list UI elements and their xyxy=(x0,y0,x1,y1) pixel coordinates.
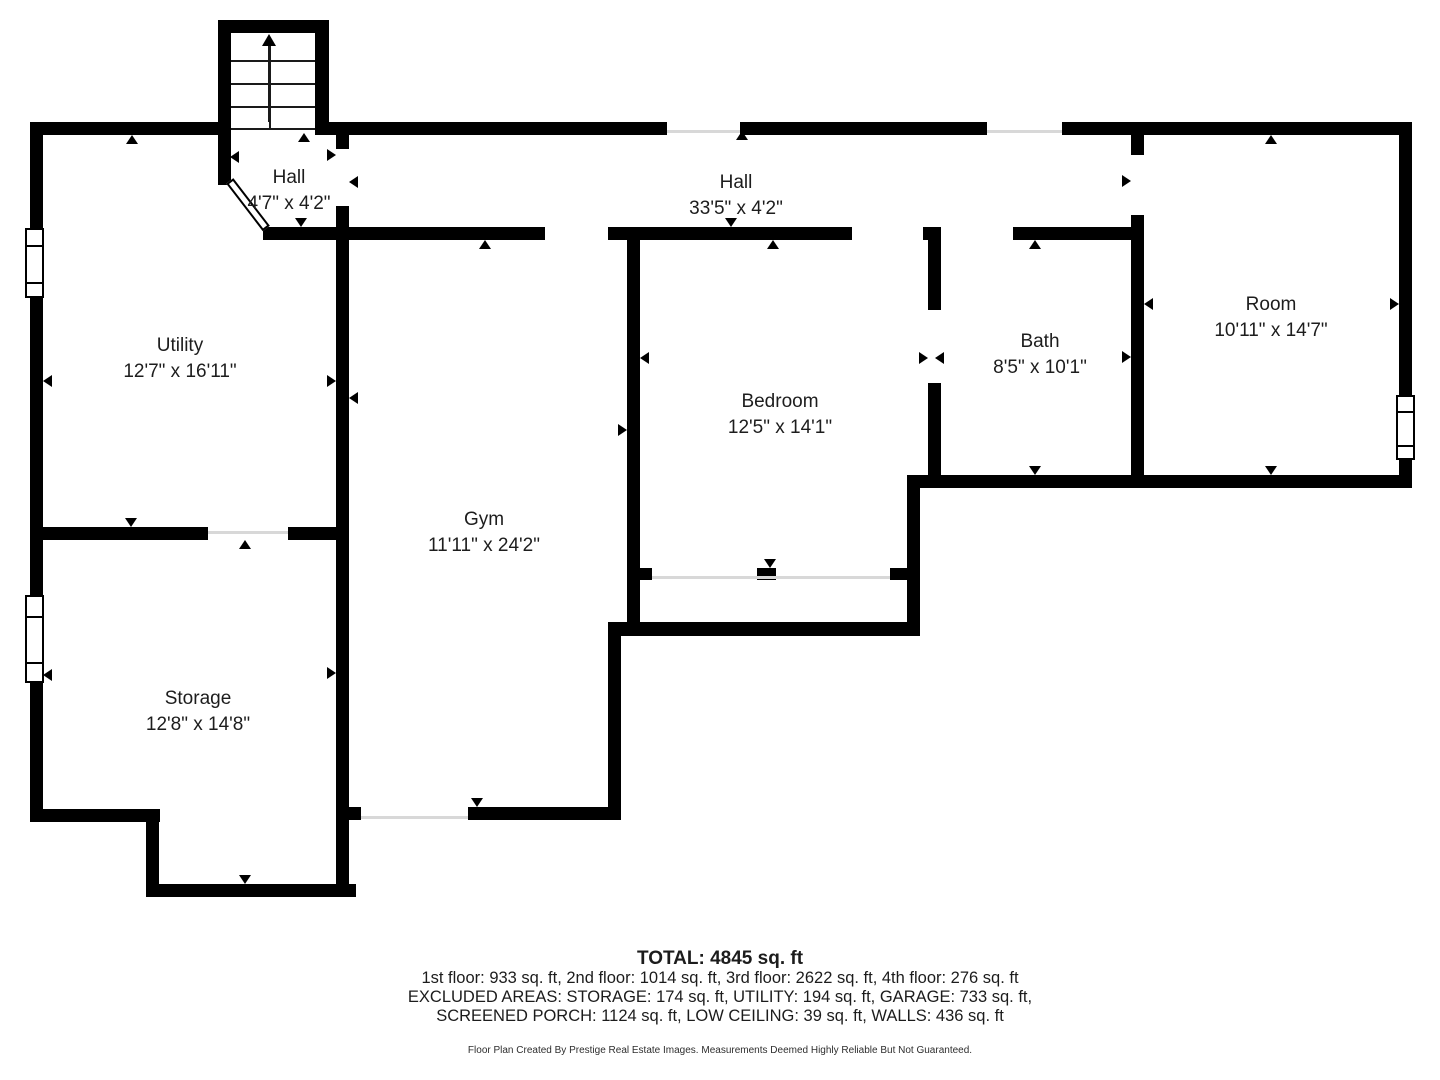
stairs-tread xyxy=(231,128,315,130)
room-label-bedroom: Bedroom12'5" x 14'1" xyxy=(728,389,832,441)
dimension-arrow-left-icon xyxy=(1144,298,1153,310)
dimension-arrow-down-icon xyxy=(239,875,251,884)
opening-line xyxy=(987,130,1062,133)
wall-segment xyxy=(30,683,43,822)
footer-excluded-areas-2: SCREENED PORCH: 1124 sq. ft, LOW CEILING… xyxy=(0,1007,1440,1026)
wall-segment xyxy=(346,807,361,820)
footer-floor-areas: 1st floor: 933 sq. ft, 2nd floor: 1014 s… xyxy=(0,969,1440,988)
wall-segment xyxy=(30,527,208,540)
wall-segment xyxy=(1013,227,1131,240)
wall-segment xyxy=(336,135,349,149)
dimension-arrow-right-icon xyxy=(919,352,928,364)
wall-segment xyxy=(30,809,160,822)
dimension-arrow-up-icon xyxy=(1029,240,1041,249)
wall-segment xyxy=(640,568,652,580)
window-pane-line xyxy=(1397,445,1414,447)
room-label-hall-small: Hall4'7" x 4'2" xyxy=(247,165,330,217)
room-dimensions: 12'7" x 16'11" xyxy=(123,359,236,385)
stairs-tread xyxy=(231,106,315,108)
room-dimensions: 12'8" x 14'8" xyxy=(146,712,250,738)
dimension-arrow-right-icon xyxy=(618,424,627,436)
wall-segment xyxy=(263,227,348,240)
room-name: Utility xyxy=(123,333,236,359)
room-dimensions: 33'5" x 4'2" xyxy=(689,196,783,222)
dimension-arrow-left-icon xyxy=(43,669,52,681)
footer-excluded-areas: EXCLUDED AREAS: STORAGE: 174 sq. ft, UTI… xyxy=(0,988,1440,1007)
dimension-arrow-left-icon xyxy=(349,392,358,404)
dimension-arrow-down-icon xyxy=(1029,466,1041,475)
dimension-arrow-down-icon xyxy=(125,518,137,527)
opening-line xyxy=(652,576,890,579)
wall-segment xyxy=(468,807,621,820)
wall-segment xyxy=(30,540,43,595)
room-label-storage: Storage12'8" x 14'8" xyxy=(146,686,250,738)
opening-line xyxy=(208,531,288,534)
room-dimensions: 11'11" x 24'2" xyxy=(428,533,540,559)
wall-segment xyxy=(30,122,218,135)
room-dimensions: 4'7" x 4'2" xyxy=(247,191,330,217)
dimension-arrow-up-icon xyxy=(736,131,748,140)
dimension-arrow-right-icon xyxy=(327,149,336,161)
room-label-gym: Gym11'11" x 24'2" xyxy=(428,507,540,559)
dimension-arrow-up-icon xyxy=(126,135,138,144)
wall-segment xyxy=(146,884,356,897)
wall-segment xyxy=(627,227,640,636)
wall-segment xyxy=(336,230,349,897)
wall-segment xyxy=(608,622,920,636)
window-pane-line xyxy=(26,245,43,247)
window-pane-line xyxy=(26,662,43,664)
dimension-arrow-down-icon xyxy=(471,798,483,807)
storage-window-icon xyxy=(25,595,44,683)
dimension-arrow-down-icon xyxy=(1265,466,1277,475)
room-window-icon xyxy=(1396,395,1415,460)
dimension-arrow-right-icon xyxy=(327,667,336,679)
room-name: Bath xyxy=(993,329,1087,355)
wall-segment xyxy=(30,298,43,527)
room-name: Bedroom xyxy=(728,389,832,415)
wall-segment xyxy=(346,227,545,240)
wall-segment xyxy=(315,20,329,135)
wall-segment xyxy=(740,122,987,135)
dimension-arrow-right-icon xyxy=(1122,351,1131,363)
floor-plan-canvas: TOTAL: 4845 sq. ft 1st floor: 933 sq. ft… xyxy=(0,0,1440,1080)
room-name: Hall xyxy=(689,170,783,196)
wall-segment xyxy=(608,622,621,820)
dimension-arrow-left-icon xyxy=(230,151,239,163)
room-name: Storage xyxy=(146,686,250,712)
dimension-arrow-up-icon xyxy=(767,240,779,249)
wall-segment xyxy=(1131,215,1144,477)
wall-segment xyxy=(910,475,1412,488)
opening-line xyxy=(667,130,740,133)
room-dimensions: 12'5" x 14'1" xyxy=(728,415,832,441)
stairs-tread xyxy=(231,83,315,85)
room-label-bath: Bath8'5" x 10'1" xyxy=(993,329,1087,381)
room-name: Gym xyxy=(428,507,540,533)
room-label-hall: Hall33'5" x 4'2" xyxy=(689,170,783,222)
room-name: Room xyxy=(1214,292,1327,318)
wall-segment xyxy=(1131,122,1144,155)
window-pane-line xyxy=(1397,411,1414,413)
wall-segment xyxy=(608,227,852,240)
wall-segment xyxy=(928,227,941,310)
dimension-arrow-right-icon xyxy=(327,375,336,387)
dimension-arrow-left-icon xyxy=(935,352,944,364)
dimension-arrow-right-icon xyxy=(1122,175,1131,187)
window-pane-line xyxy=(26,616,43,618)
wall-segment xyxy=(315,122,667,135)
stairs-up-arrow-shaft xyxy=(268,44,271,122)
room-dimensions: 8'5" x 10'1" xyxy=(993,355,1087,381)
wall-segment xyxy=(907,475,920,636)
wall-segment xyxy=(30,122,43,228)
opening-line xyxy=(361,816,468,819)
dimension-arrow-left-icon xyxy=(43,375,52,387)
dimension-arrow-left-icon xyxy=(640,352,649,364)
wall-segment xyxy=(1062,122,1412,135)
stairs-up-arrow-icon xyxy=(262,34,276,46)
window-pane-line xyxy=(26,282,43,284)
dimension-arrow-up-icon xyxy=(479,240,491,249)
wall-segment xyxy=(1399,122,1412,395)
dimension-arrow-up-icon xyxy=(298,133,310,142)
dimension-arrow-left-icon xyxy=(349,176,358,188)
dimension-arrow-down-icon xyxy=(764,559,776,568)
wall-segment xyxy=(218,20,321,33)
room-dimensions: 10'11" x 14'7" xyxy=(1214,318,1327,344)
room-name: Hall xyxy=(247,165,330,191)
dimension-arrow-up-icon xyxy=(239,540,251,549)
utility-window-icon xyxy=(25,228,44,298)
footer-credit: Floor Plan Created By Prestige Real Esta… xyxy=(0,1045,1440,1056)
room-label-room: Room10'11" x 14'7" xyxy=(1214,292,1327,344)
dimension-arrow-up-icon xyxy=(1265,135,1277,144)
wall-segment xyxy=(890,568,907,580)
footer-total-area: TOTAL: 4845 sq. ft xyxy=(0,948,1440,970)
room-label-utility: Utility12'7" x 16'11" xyxy=(123,333,236,385)
dimension-arrow-right-icon xyxy=(1390,298,1399,310)
dimension-arrow-down-icon xyxy=(295,218,307,227)
wall-segment xyxy=(928,383,941,477)
stairs-tread xyxy=(231,60,315,62)
